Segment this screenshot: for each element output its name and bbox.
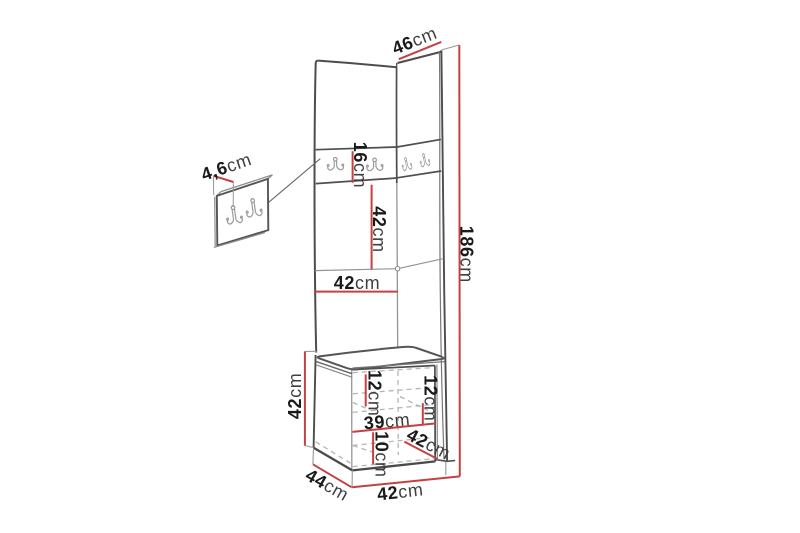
svg-text:16cm: 16cm <box>350 142 370 188</box>
svg-text:42cm: 42cm <box>369 206 389 252</box>
svg-text:39cm: 39cm <box>363 409 411 433</box>
svg-text:42cm: 42cm <box>285 373 305 419</box>
svg-text:12cm: 12cm <box>365 370 385 416</box>
svg-text:10cm: 10cm <box>372 431 392 477</box>
svg-text:12cm: 12cm <box>421 375 441 421</box>
svg-text:186cm: 186cm <box>457 226 477 283</box>
svg-text:42cm: 42cm <box>334 273 380 293</box>
